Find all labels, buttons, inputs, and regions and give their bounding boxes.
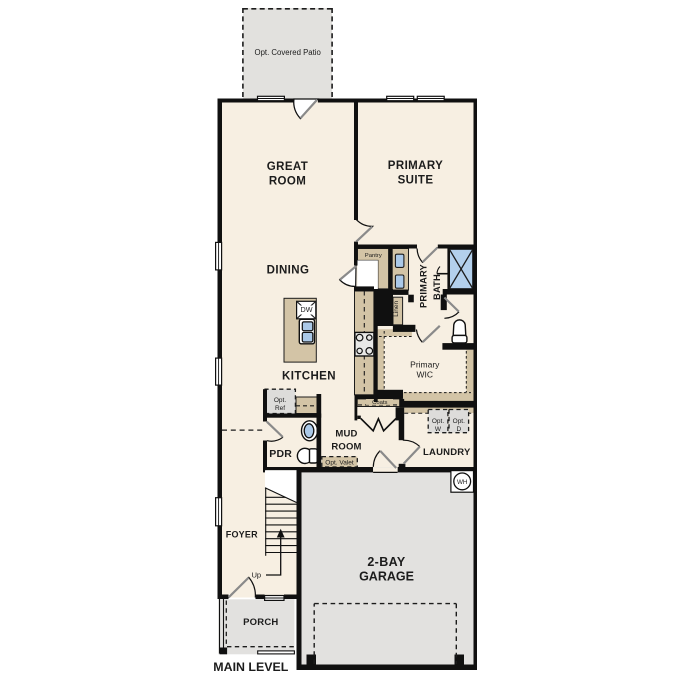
svg-text:Opt. Covered Patio: Opt. Covered Patio bbox=[255, 48, 322, 57]
svg-text:PORCH: PORCH bbox=[243, 617, 278, 628]
svg-text:Opt. Valet: Opt. Valet bbox=[325, 460, 354, 467]
svg-text:WH: WH bbox=[457, 479, 468, 486]
svg-text:LAUNDRY: LAUNDRY bbox=[423, 447, 471, 458]
svg-text:KITCHEN: KITCHEN bbox=[282, 371, 336, 383]
svg-text:DINING: DINING bbox=[267, 265, 310, 277]
svg-text:GARAGE: GARAGE bbox=[359, 569, 414, 583]
svg-text:GREAT: GREAT bbox=[267, 161, 308, 173]
svg-text:PRIMARY: PRIMARY bbox=[418, 263, 428, 308]
svg-text:BATH: BATH bbox=[432, 274, 442, 300]
svg-text:2-BAY: 2-BAY bbox=[367, 555, 406, 569]
svg-text:MAIN LEVEL: MAIN LEVEL bbox=[213, 660, 288, 674]
svg-text:Opt.: Opt. bbox=[274, 397, 286, 404]
svg-text:MUD: MUD bbox=[335, 428, 357, 439]
svg-text:DW: DW bbox=[301, 305, 313, 314]
svg-text:Pantry: Pantry bbox=[365, 253, 382, 259]
svg-text:Opt.: Opt. bbox=[453, 418, 465, 425]
svg-text:SUITE: SUITE bbox=[398, 174, 434, 186]
svg-text:Up: Up bbox=[251, 571, 261, 580]
svg-text:WIC: WIC bbox=[417, 369, 434, 379]
svg-text:ROOM: ROOM bbox=[269, 175, 306, 187]
svg-text:Primary: Primary bbox=[410, 360, 440, 370]
svg-text:W: W bbox=[435, 426, 442, 433]
svg-text:PDR: PDR bbox=[269, 448, 292, 460]
svg-text:ROOM: ROOM bbox=[331, 441, 361, 452]
svg-text:Ref: Ref bbox=[275, 405, 285, 412]
svg-text:Opt.: Opt. bbox=[432, 418, 444, 425]
svg-text:FOYER: FOYER bbox=[226, 530, 258, 540]
svg-text:Linen: Linen bbox=[393, 300, 400, 316]
svg-text:D: D bbox=[456, 426, 461, 433]
svg-text:PRIMARY: PRIMARY bbox=[388, 160, 443, 172]
